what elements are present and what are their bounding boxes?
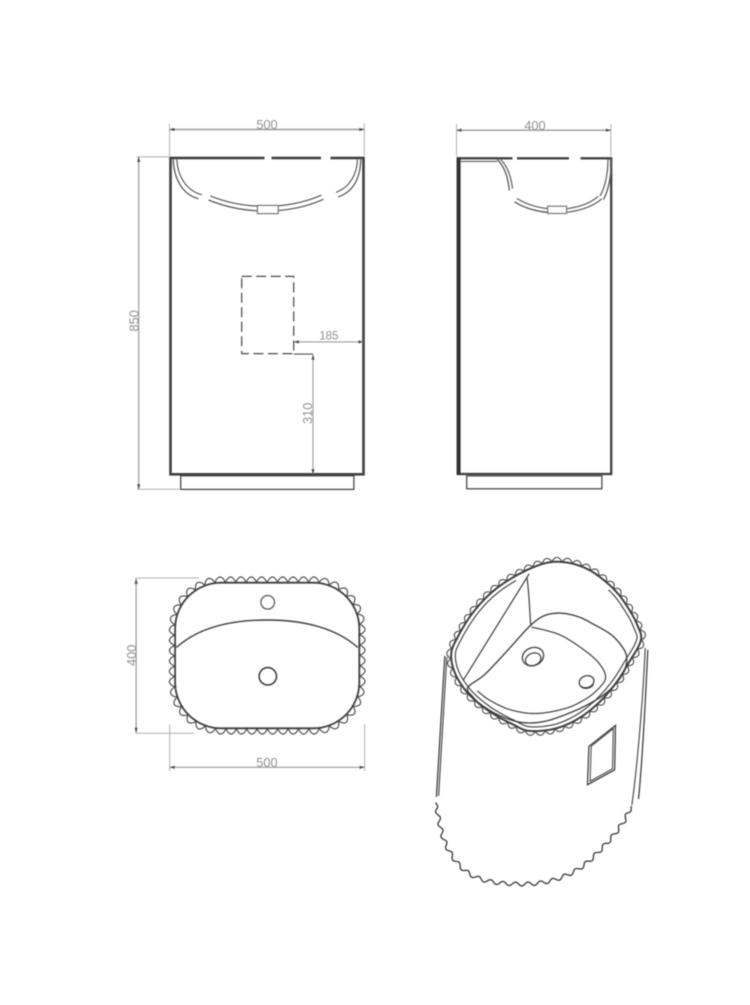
- svg-text:400: 400: [524, 118, 545, 133]
- svg-text:850: 850: [127, 310, 142, 331]
- svg-text:500: 500: [256, 117, 277, 132]
- svg-text:400: 400: [124, 645, 139, 666]
- svg-text:500: 500: [256, 755, 277, 770]
- svg-text:310: 310: [300, 403, 315, 424]
- svg-text:185: 185: [319, 330, 338, 342]
